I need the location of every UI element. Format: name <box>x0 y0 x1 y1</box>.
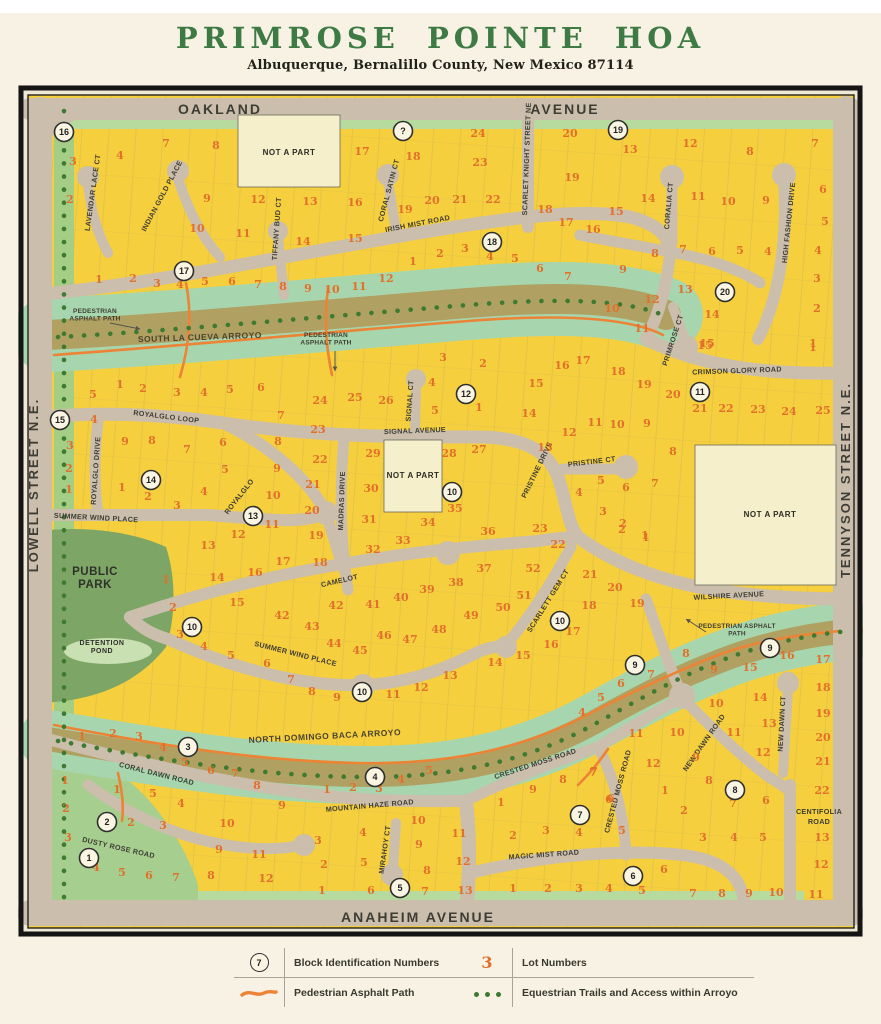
lot-number: 12 <box>378 272 393 285</box>
lot-number: 22 <box>312 453 327 466</box>
lot-number: 8 <box>253 779 261 792</box>
lot-number: 4 <box>730 831 738 844</box>
lot-number: 38 <box>448 576 464 589</box>
header: PRIMROSE POINTE HOA Albuquerque, Bernali… <box>0 13 881 73</box>
lot-number: 6 <box>819 183 827 196</box>
block-badge-number: 9 <box>767 643 772 653</box>
lot-number: 5 <box>89 388 97 401</box>
block-badge-number: ? <box>400 126 406 136</box>
lot-number: 17 <box>575 354 590 367</box>
lot-number: 19 <box>397 203 412 216</box>
cul-de-sac-bulb <box>293 834 315 856</box>
block-badge-number: 3 <box>185 742 190 752</box>
lot-number: 14 <box>209 571 225 584</box>
lot-number: 8 <box>559 773 567 786</box>
map-canvas: OAKLANDAVENUEANAHEIM AVENUELOWELL STREET… <box>18 85 863 937</box>
lot-number: 22 <box>550 538 565 551</box>
lot-number: 3 <box>813 272 821 285</box>
lot-number: 13 <box>761 717 776 730</box>
lot-number: 20 <box>562 127 578 140</box>
lot-number: 9 <box>415 838 423 851</box>
lot-number: 11 <box>251 848 266 861</box>
lot-number: 1 <box>409 255 417 268</box>
block-badge-number: 15 <box>55 415 65 425</box>
lot-number: 13 <box>200 539 215 552</box>
lot-number: 43 <box>304 620 319 633</box>
lot-number: 2 <box>66 193 74 206</box>
lot-number: 7 <box>811 137 819 150</box>
lot-number: 24 <box>312 394 328 407</box>
lot-number: 9 <box>619 263 627 276</box>
lot-number: 4 <box>200 386 208 399</box>
lot-number: 18 <box>581 599 597 612</box>
lot-number: 11 <box>634 322 649 335</box>
lot-number: 6 <box>228 275 236 288</box>
lot-number: 36 <box>480 525 496 538</box>
lot-number: 5 <box>597 474 605 487</box>
lot-number: 21 <box>452 193 467 206</box>
lot-number: 10 <box>604 302 620 315</box>
lot-number: 8 <box>207 869 215 882</box>
block-badge-number: 6 <box>630 871 635 881</box>
lot-number: 20 <box>304 504 320 517</box>
lot-number: 3 <box>173 499 181 512</box>
lot-number: 8 <box>274 435 282 448</box>
lot-number: 18 <box>537 203 553 216</box>
pedestrian-path-icon <box>240 987 278 999</box>
lot-number: 5 <box>201 275 209 288</box>
lot-number: 2 <box>436 247 444 260</box>
lot-number: 6 <box>708 245 716 258</box>
lot-number: 6 <box>263 657 271 670</box>
lot-number: 1 <box>323 783 331 796</box>
lot-number: 8 <box>746 145 754 158</box>
lot-number: 14 <box>752 691 768 704</box>
lot-number: 20 <box>665 388 681 401</box>
lot-number: 7 <box>172 871 180 884</box>
lot-number: 2 <box>144 490 152 503</box>
lot-number: 23 <box>750 403 765 416</box>
lot-number: 4 <box>200 485 208 498</box>
lot-number-icon: 3 <box>481 953 492 972</box>
legend-trail-label: Equestrian Trails and Access within Arro… <box>512 977 754 1007</box>
block-badge-number: 10 <box>357 687 367 697</box>
lot-number: 8 <box>212 139 220 152</box>
lot-number: 12 <box>413 681 428 694</box>
lot-number: 1 <box>509 882 517 895</box>
lot-number: 15 <box>528 377 543 390</box>
lot-number: 9 <box>692 751 700 764</box>
lot-number: 19 <box>815 707 830 720</box>
area-label: NOT A PART <box>263 148 316 157</box>
legend-path-symbol <box>234 977 284 1007</box>
lot-number: 12 <box>755 746 770 759</box>
lot-number: 35 <box>447 502 462 515</box>
lot-number: 2 <box>320 858 328 871</box>
lot-number: 5 <box>118 866 126 879</box>
lot-number: 1 <box>318 884 326 897</box>
lot-number: 7 <box>564 270 572 283</box>
legend-path-label: Pedestrian Asphalt Path <box>284 977 462 1007</box>
lot-number: 6 <box>536 262 544 275</box>
lot-number: 30 <box>363 482 379 495</box>
lot-number: 24 <box>781 405 797 418</box>
top-white-bar <box>0 0 881 13</box>
lot-number: 1 <box>61 774 69 787</box>
lot-number: 11 <box>264 518 279 531</box>
lot-number: 3 <box>64 831 72 844</box>
lot-number: 15 <box>742 661 757 674</box>
block-badge-number: 10 <box>555 616 565 626</box>
lot-number: 7 <box>287 673 295 686</box>
lot-number: 9 <box>278 799 286 812</box>
lot-number: 5 <box>360 856 368 869</box>
lot-number: 5 <box>227 649 235 662</box>
lot-number: 44 <box>326 637 342 650</box>
lot-number: 21 <box>692 402 707 415</box>
lot-number: 8 <box>651 247 659 260</box>
lot-number: 17 <box>275 555 290 568</box>
lot-number: 17 <box>815 653 830 666</box>
lot-number: 1 <box>113 783 121 796</box>
lot-number: 7 <box>689 887 697 900</box>
lot-number: 1 <box>642 531 650 544</box>
block-badge-number: 8 <box>732 785 737 795</box>
lot-number: 27 <box>471 443 486 456</box>
lot-number: 5 <box>597 691 605 704</box>
lot-number: 18 <box>312 556 328 569</box>
cul-de-sac-bulb <box>669 683 695 709</box>
lot-number: 15 <box>515 649 530 662</box>
legend: N 7 Block Identification Numbers 3 Lot N… <box>212 948 732 1007</box>
boundary-street-label: TENNYSON STREET N.E. <box>838 382 853 578</box>
lot-number: 3 <box>69 155 77 168</box>
lot-number: 10 <box>609 418 625 431</box>
block-badge-number: 12 <box>461 389 471 399</box>
lot-number: 3 <box>314 834 322 847</box>
lot-number: 1 <box>475 401 483 414</box>
lot-number: 4 <box>428 376 436 389</box>
road <box>393 823 396 869</box>
lot-number: 12 <box>258 872 273 885</box>
lot-number: 1 <box>661 784 669 797</box>
legend-block-label: Block Identification Numbers <box>284 948 462 977</box>
lot-number: 13 <box>814 831 829 844</box>
lot-number: 22 <box>814 784 829 797</box>
lot-number: 2 <box>813 302 821 315</box>
lot-number: 49 <box>463 609 478 622</box>
lot-number: 7 <box>162 137 170 150</box>
lot-number: 41 <box>365 598 380 611</box>
lot-number: 8 <box>423 864 431 877</box>
lot-number: 7 <box>277 409 285 422</box>
lot-number: 11 <box>726 726 741 739</box>
lot-number: 19 <box>564 171 579 184</box>
block-badge-number: 14 <box>146 475 156 485</box>
lot-number: 14 <box>487 656 503 669</box>
lot-number: 9 <box>762 194 770 207</box>
lot-number: 8 <box>705 774 713 787</box>
lot-number: 12 <box>455 855 470 868</box>
lot-number: 11 <box>385 688 400 701</box>
block-circle-icon: 7 <box>250 953 269 972</box>
lot-number: 22 <box>718 402 733 415</box>
lot-number: 3 <box>439 351 447 364</box>
lot-number: 21 <box>815 755 830 768</box>
lot-number: 10 <box>265 489 281 502</box>
lot-number: 5 <box>736 244 744 257</box>
lot-number: 21 <box>305 478 320 491</box>
lot-number: 5 <box>618 824 626 837</box>
lot-number: 16 <box>554 359 570 372</box>
lot-number: 12 <box>682 137 697 150</box>
lot-number: 2 <box>169 601 177 614</box>
street-label: CENTIFOLIA <box>796 807 842 816</box>
lot-number: 10 <box>324 283 340 296</box>
lot-number: 4 <box>575 486 583 499</box>
lot-number: 3 <box>699 831 707 844</box>
lot-number: 51 <box>516 589 531 602</box>
lot-number: 16 <box>779 649 795 662</box>
lot-number: 16 <box>347 196 363 209</box>
lot-number: 15 <box>697 339 712 352</box>
lot-number: 3 <box>575 882 583 895</box>
lot-number: 12 <box>645 757 660 770</box>
lot-number: 14 <box>704 308 720 321</box>
lot-number: 1 <box>78 730 86 743</box>
lot-number: 4 <box>159 741 167 754</box>
lot-number: 47 <box>402 633 417 646</box>
lot-number: 4 <box>177 797 185 810</box>
lot-number: 46 <box>376 629 392 642</box>
block-badge-number: 19 <box>613 125 623 135</box>
lot-number: 9 <box>273 462 281 475</box>
lot-number: 6 <box>607 792 615 805</box>
lot-number: 9 <box>745 887 753 900</box>
lot-number: 9 <box>121 435 129 448</box>
lot-number: 11 <box>628 727 643 740</box>
lot-number: 24 <box>470 127 486 140</box>
lot-number: 1 <box>65 483 73 496</box>
lot-number: 11 <box>351 280 366 293</box>
lot-number: 5 <box>425 764 433 777</box>
lot-number: 6 <box>367 884 375 897</box>
lot-number: 18 <box>405 150 421 163</box>
boundary-street-label: LOWELL STREET N.E. <box>26 398 41 572</box>
cul-de-sac-bulb <box>777 672 799 694</box>
road <box>415 385 416 431</box>
lot-number: 4 <box>90 413 98 426</box>
lot-number: 12 <box>813 858 828 871</box>
lot-number: 4 <box>200 640 208 653</box>
lot-number: 6 <box>207 764 215 777</box>
lot-number: 6 <box>622 481 630 494</box>
block-badge-number: 18 <box>487 237 497 247</box>
lot-number: 12 <box>644 293 659 306</box>
lot-number: 1 <box>95 273 103 286</box>
lot-number: 10 <box>189 222 205 235</box>
lot-number: 7 <box>254 278 262 291</box>
lot-number: 1 <box>809 341 817 354</box>
lot-number: 16 <box>543 638 559 651</box>
boundary-street-label: AVENUE <box>530 101 599 117</box>
lot-number: 42 <box>274 609 289 622</box>
lot-number: 14 <box>521 407 537 420</box>
lot-number: 15 <box>608 205 623 218</box>
lot-number: 33 <box>395 534 410 547</box>
lot-number: 29 <box>365 447 380 460</box>
lot-number: 3 <box>599 505 607 518</box>
block-badge-number: 7 <box>577 810 582 820</box>
lot-number: 4 <box>397 773 405 786</box>
lot-number: 8 <box>279 280 287 293</box>
lot-number: 2 <box>349 781 357 794</box>
lot-number: 18 <box>610 365 626 378</box>
lot-number: 23 <box>310 423 325 436</box>
lot-number: 16 <box>585 223 601 236</box>
boundary-street-label: OAKLAND <box>178 101 262 117</box>
lot-number: 20 <box>607 581 623 594</box>
lot-number: 11 <box>587 416 602 429</box>
lot-number: 50 <box>495 601 511 614</box>
lot-number: 6 <box>762 794 770 807</box>
block-badge-number: 10 <box>187 622 197 632</box>
lot-number: 8 <box>682 647 690 660</box>
lot-number: 8 <box>718 887 726 900</box>
lot-number: 10 <box>720 195 736 208</box>
lot-number: 19 <box>636 378 651 391</box>
lot-number: 26 <box>378 394 394 407</box>
lot-number: 4 <box>605 882 613 895</box>
lot-number: 2 <box>479 357 487 370</box>
lot-number: 5 <box>821 215 829 228</box>
lot-number: 21 <box>582 568 597 581</box>
lot-number: 52 <box>525 562 540 575</box>
lot-number: 25 <box>815 404 830 417</box>
lot-number: 9 <box>215 843 223 856</box>
lot-number: 25 <box>347 391 362 404</box>
lot-number: 3 <box>461 242 469 255</box>
block-badge-number: 17 <box>179 266 189 276</box>
lot-number: 8 <box>308 685 316 698</box>
lot-number: 10 <box>708 697 724 710</box>
lot-number: 1 <box>497 796 505 809</box>
lot-number: 8 <box>669 445 677 458</box>
lot-number: 3 <box>66 439 74 452</box>
block-badge-number: 13 <box>248 511 258 521</box>
lot-number: 5 <box>149 787 157 800</box>
lot-number: 17 <box>354 145 369 158</box>
lot-number: 12 <box>250 193 265 206</box>
page: PRIMROSE POINTE HOA Albuquerque, Bernali… <box>0 0 881 1024</box>
annotation-label: PEDESTRIANASPHALT PATH <box>300 332 351 347</box>
lot-number: 3 <box>153 277 161 290</box>
lot-number: 20 <box>815 731 831 744</box>
lot-number: 6 <box>145 869 153 882</box>
lot-number: 19 <box>629 597 644 610</box>
lot-number: 48 <box>431 623 447 636</box>
block-badge-number: 4 <box>372 772 377 782</box>
lot-number: 32 <box>365 543 380 556</box>
lot-number: 10 <box>219 817 235 830</box>
lot-number: 7 <box>679 243 687 256</box>
area-label: PUBLICPARK <box>72 566 118 591</box>
lot-number: 6 <box>219 436 227 449</box>
lot-number: 7 <box>421 885 429 898</box>
lot-number: 3 <box>173 386 181 399</box>
lot-number: 2 <box>65 462 73 475</box>
lot-number: 7 <box>651 477 659 490</box>
page-subtitle: Albuquerque, Bernalillo County, New Mexi… <box>0 58 881 73</box>
lot-number: 1 <box>162 573 170 586</box>
lot-number: 3 <box>159 819 167 832</box>
block-badge-number: 20 <box>720 287 730 297</box>
lot-number: 2 <box>139 382 147 395</box>
lot-number: 1 <box>116 378 124 391</box>
lot-number: 14 <box>295 235 311 248</box>
block-badge-number: 16 <box>59 127 69 137</box>
lot-number: 4 <box>764 245 772 258</box>
lot-number: 40 <box>393 591 409 604</box>
boundary-street-label: ANAHEIM AVENUE <box>341 909 495 925</box>
lot-number: 7 <box>231 767 239 780</box>
cul-de-sac-bulb <box>495 636 517 658</box>
lot-number: 39 <box>419 583 434 596</box>
lot-number: 9 <box>710 663 718 676</box>
lot-number: 16 <box>247 566 263 579</box>
lot-number: 5 <box>431 404 439 417</box>
lot-number: 37 <box>476 562 491 575</box>
legend-trail-symbol <box>462 977 512 1007</box>
block-badge-number: 2 <box>104 817 109 827</box>
lot-number: 4 <box>578 706 586 719</box>
lot-number: 4 <box>575 826 583 839</box>
lot-number: 23 <box>472 156 487 169</box>
lot-number: 13 <box>302 195 317 208</box>
lot-number: 9 <box>304 282 312 295</box>
area-label: NOT A PART <box>744 510 797 519</box>
lot-number: 28 <box>441 447 457 460</box>
cul-de-sac-bulb <box>436 541 460 565</box>
lot-number: 15 <box>229 596 244 609</box>
lot-number: 4 <box>359 826 367 839</box>
lot-number: 22 <box>485 193 500 206</box>
annotation-label: PEDESTRIANASPHALT PATH <box>69 308 120 323</box>
lot-number: 2 <box>544 882 552 895</box>
lot-number: 6 <box>660 863 668 876</box>
lot-number: 5 <box>638 884 646 897</box>
block-badge-number: 5 <box>397 883 402 893</box>
street-label: ROAD <box>808 817 830 826</box>
lot-number: 3 <box>135 730 143 743</box>
lot-number: 19 <box>308 529 323 542</box>
lot-number: 11 <box>451 827 466 840</box>
lot-number: 12 <box>230 528 245 541</box>
lot-number: 13 <box>622 143 637 156</box>
lot-number: 7 <box>589 766 597 779</box>
equestrian-trail-icon <box>471 984 504 1002</box>
lot-number: 23 <box>532 522 547 535</box>
lot-number: 10 <box>669 726 685 739</box>
lot-number: 5 <box>181 756 189 769</box>
lot-number: 9 <box>643 417 651 430</box>
lot-number: 5 <box>511 252 519 265</box>
lot-number: 13 <box>442 669 457 682</box>
lot-number: 2 <box>62 802 70 815</box>
lot-number: 17 <box>558 216 573 229</box>
lot-number: 42 <box>328 599 343 612</box>
lot-number: 10 <box>410 814 426 827</box>
